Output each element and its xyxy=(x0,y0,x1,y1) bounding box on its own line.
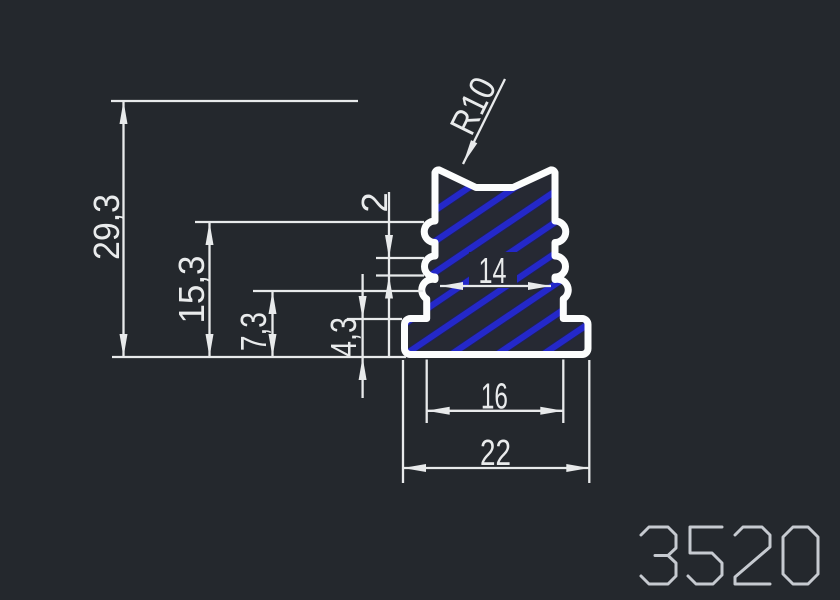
svg-text:4,3: 4,3 xyxy=(323,317,364,357)
svg-text:14: 14 xyxy=(479,250,507,291)
svg-text:22: 22 xyxy=(480,432,511,473)
svg-text:2: 2 xyxy=(354,192,395,212)
svg-text:16: 16 xyxy=(481,376,508,417)
svg-text:29,3: 29,3 xyxy=(86,194,127,260)
svg-text:15,3: 15,3 xyxy=(171,255,212,323)
svg-text:7,3: 7,3 xyxy=(233,312,274,351)
